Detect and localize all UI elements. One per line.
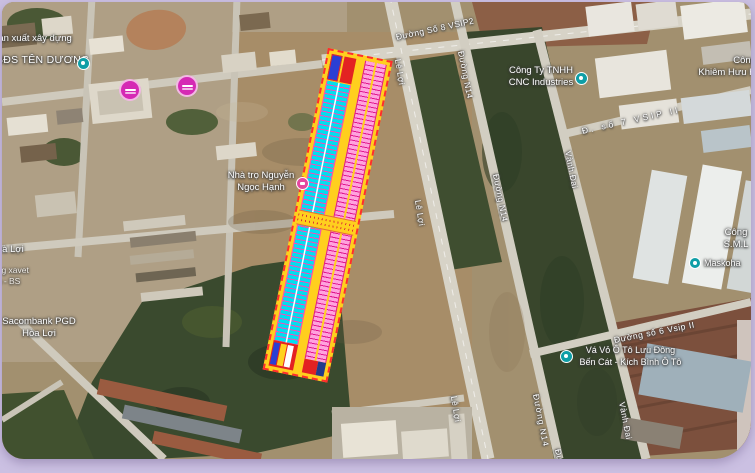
- place-label-cnc-industries[interactable]: Công Ty TNHH CNC Industries: [507, 65, 575, 90]
- poi-marker-maskoha[interactable]: [689, 257, 701, 269]
- place-label-xavet[interactable]: àng xavet ạn - BS: [2, 265, 29, 287]
- place-label-va-vo-o-to[interactable]: Vá Vỏ Ô Tô Lưu Đông Bến Cát - Kích Bình …: [578, 345, 683, 368]
- place-label-cong-sml[interactable]: Công S.M.L: [716, 227, 751, 252]
- place-label-cong-khiem-huu[interactable]: Công Khiêm Hưu H: [698, 55, 751, 80]
- place-label-xay-dung[interactable]: Sản xuất xây dựng: [2, 33, 72, 45]
- place-label-hoa-loi[interactable]: Hoà Lợi: [2, 244, 24, 256]
- map-card: Đường Số 8 VSIP2 Lê Lợi Đường N14 Lê Lợi…: [2, 2, 751, 459]
- place-label-maskoha[interactable]: Maskoha: [704, 258, 741, 270]
- poi-marker-bds-ten-duong[interactable]: [77, 57, 90, 70]
- plot-cell-navy: [316, 361, 327, 376]
- plot-bottom-block-left: [269, 340, 299, 370]
- poi-marker-va-vo-o-to[interactable]: [560, 350, 573, 363]
- place-label-nha-tro[interactable]: Nhà trọ Nguyễn Ngọc Hạnh: [226, 170, 296, 195]
- listing-marker-1[interactable]: [119, 79, 141, 101]
- poi-marker-cnc-industries[interactable]: [575, 72, 588, 85]
- plot-bottom-block-right: [302, 359, 326, 377]
- plot-top-block: [327, 54, 357, 84]
- lodging-marker-nha-tro[interactable]: [296, 177, 309, 190]
- listing-marker-2[interactable]: [176, 75, 198, 97]
- place-label-sacombank[interactable]: Sacombank PGD Hòa Lợi: [2, 316, 76, 341]
